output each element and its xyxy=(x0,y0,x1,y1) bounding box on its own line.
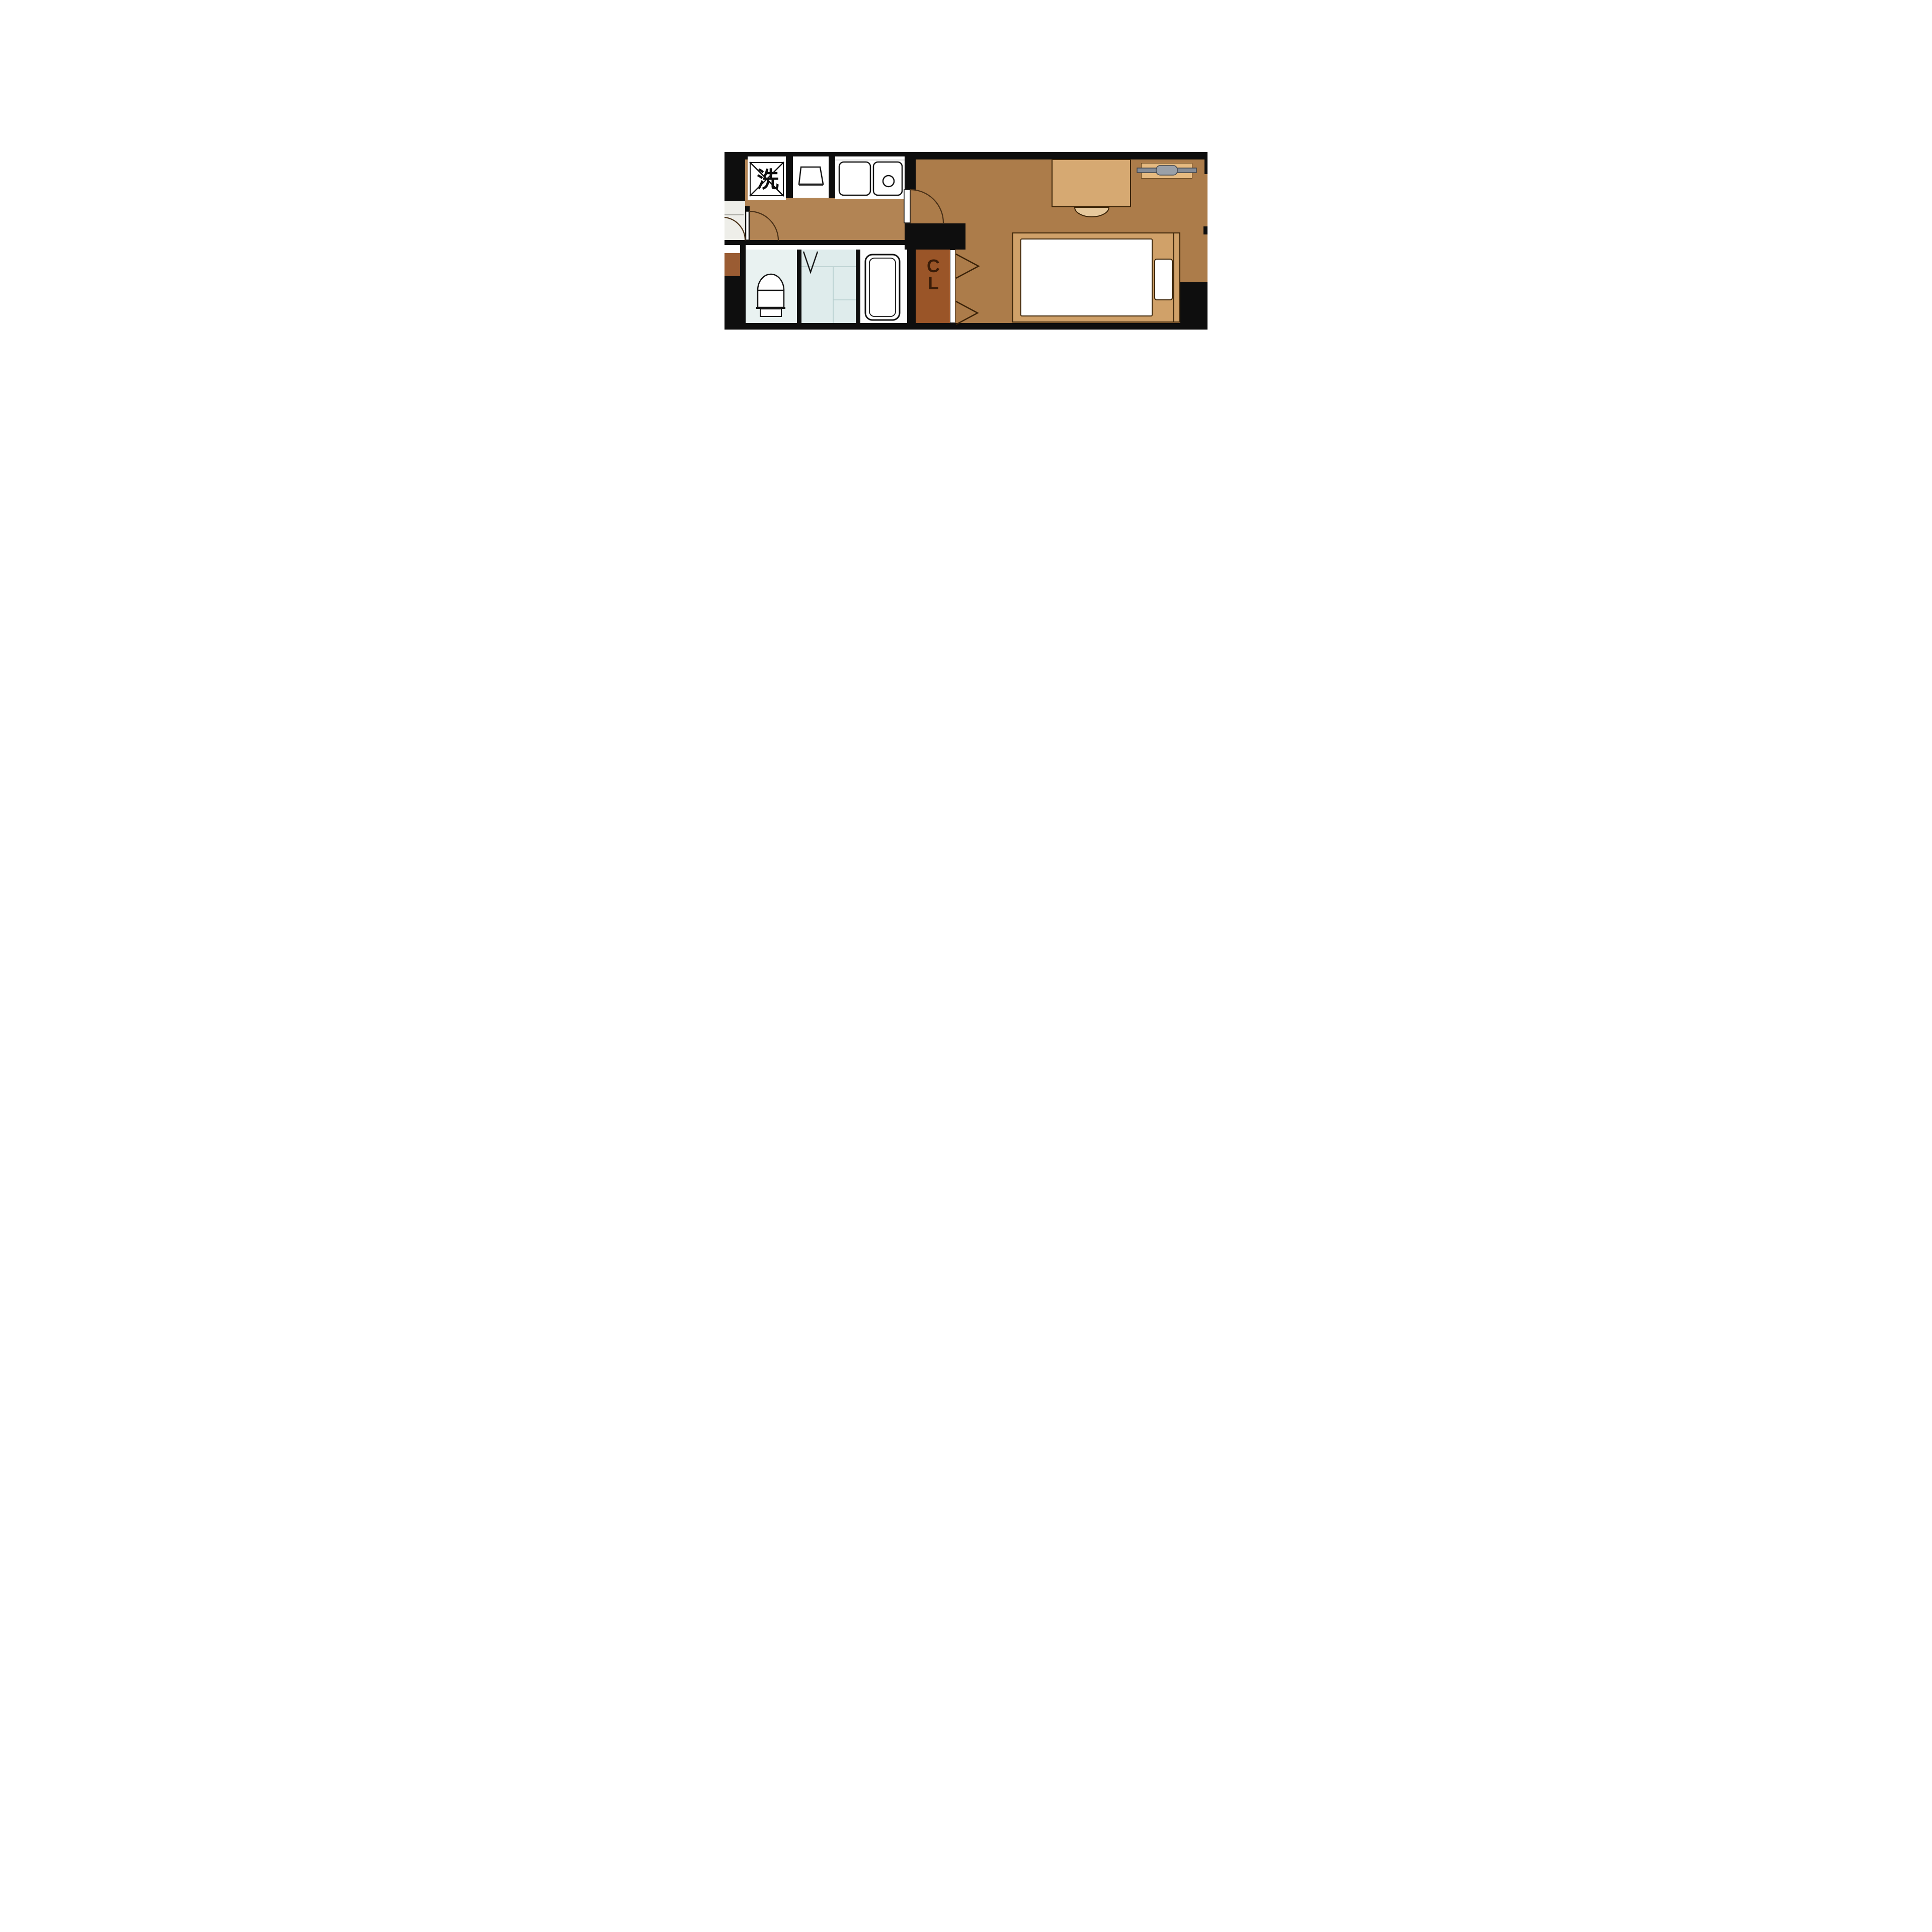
entrance-step-line xyxy=(725,214,744,215)
bathroom-floor xyxy=(801,250,856,323)
wall-main-room-chunk xyxy=(905,223,965,250)
toilet-room-floor xyxy=(746,250,797,323)
bed-mattress xyxy=(1020,238,1153,316)
wall-hall-door-jamb xyxy=(745,206,750,240)
wall-top-left-corner xyxy=(725,152,745,201)
wall-meter-below xyxy=(725,276,740,323)
wall-right-nub xyxy=(1203,226,1207,234)
wall-bottom-right-block xyxy=(1180,282,1207,330)
wall-sep-stove-sink xyxy=(829,152,835,198)
floor-plan: CL B 洗 xyxy=(725,0,1207,483)
wall-hall-bottom xyxy=(725,240,906,245)
entrance-floor xyxy=(725,201,745,240)
wall-sep-washer-stove xyxy=(786,152,793,198)
floor-plan-image: CL B 洗 xyxy=(725,0,1207,483)
air-conditioner xyxy=(1141,163,1192,179)
bed-pillow xyxy=(1154,259,1173,300)
wall-toilet-right xyxy=(797,250,801,323)
desk xyxy=(1052,159,1131,207)
wall-main-room-upper xyxy=(905,152,916,190)
kitchen-counter xyxy=(835,156,905,199)
wall-tub-right xyxy=(907,250,916,323)
wall-right-sliver xyxy=(1204,152,1207,174)
stove-space xyxy=(793,156,829,198)
bathtub-room-floor xyxy=(860,250,907,323)
wall-meter-right xyxy=(740,245,746,323)
wall-bath-right xyxy=(856,250,860,323)
closet-label: CL xyxy=(919,258,948,292)
meter-box: B xyxy=(725,253,740,276)
washing-machine-label: 洗 xyxy=(754,166,782,194)
closet-sliding-panel xyxy=(950,250,955,323)
threshold-wet-rooms xyxy=(742,245,907,250)
wall-bottom xyxy=(725,323,1207,330)
